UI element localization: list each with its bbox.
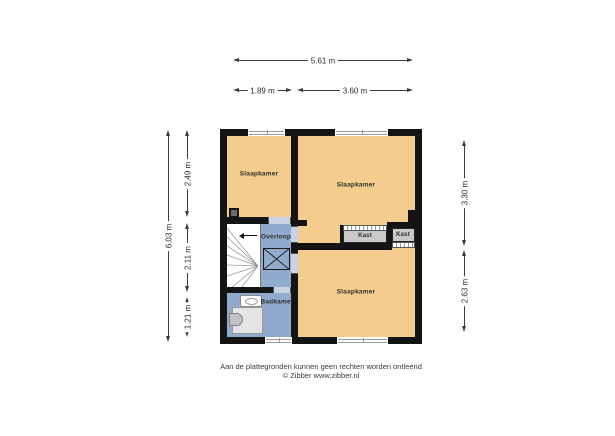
closet-right-door <box>392 242 415 248</box>
door-bathroom <box>273 287 291 293</box>
wall-bedroom-tl-bottom <box>227 217 268 224</box>
bathroom-sink <box>240 295 262 307</box>
stair-arrow <box>244 235 257 236</box>
arrow-up-icon <box>185 130 189 136</box>
stair-arrow-head-icon <box>239 233 244 239</box>
room-label-bathroom: Badkamer <box>260 299 293 306</box>
arrow-left-icon <box>233 88 239 92</box>
room-label-closet-right: Kast <box>396 232 410 238</box>
floorplan-page: 5.61 m 1.89 m 3.60 m 6.03 m 2.49 m 2.11 … <box>0 0 615 436</box>
window-top-left <box>248 129 285 136</box>
wall-bathroom-top <box>227 287 273 293</box>
door-bedroom-top-left <box>268 217 291 224</box>
arrow-up-icon <box>185 223 189 229</box>
footer: Aan de plattegronden kunnen geen rechten… <box>27 362 615 380</box>
stairs <box>227 224 261 287</box>
window-bottom-left <box>265 337 292 344</box>
dimension-label: 1.89 m <box>247 86 277 95</box>
dimension-label: 5.61 m <box>308 56 338 65</box>
room-label-closet-left: Kast <box>358 233 372 239</box>
dimension-label: 2.63 m <box>460 276 469 306</box>
wall-central-upper <box>291 136 298 226</box>
dimension-left-top-segment: 2.49 m <box>183 130 192 217</box>
dimension-label: 3.60 m <box>340 86 370 95</box>
void-x-marker <box>263 248 290 270</box>
floor-plan: Slaapkamer Slaapkamer Slaapkamer Overloo… <box>220 129 422 344</box>
door-bedroom-top-right <box>291 226 298 243</box>
bathroom-toilet <box>229 313 243 326</box>
footer-disclaimer: Aan de plattegronden kunnen geen rechten… <box>27 362 615 371</box>
arrow-down-icon <box>462 326 466 332</box>
dimension-label: 1.21 m <box>183 302 192 332</box>
window-top-right <box>335 129 388 136</box>
dimension-top-right-segment: 3.60 m <box>297 86 413 95</box>
wall-right-stub <box>408 210 415 223</box>
wall-outer-left <box>220 129 227 344</box>
room-label-bedroom-top-right: Slaapkamer <box>337 182 376 189</box>
window-bottom-right <box>337 337 388 344</box>
arrow-down-icon <box>185 211 189 217</box>
wall-outer-right <box>415 129 422 344</box>
dimension-label: 3.30 m <box>460 178 469 208</box>
arrow-right-icon <box>407 58 413 62</box>
arrow-left-icon <box>233 58 239 62</box>
dimension-left-bottom-segment: 1.21 m <box>183 297 192 337</box>
dimension-left-middle-segment: 2.11 m <box>183 223 192 292</box>
footer-credit: © Zibber www.zibber.nl <box>27 371 615 380</box>
wall-stub-bedroom-tr <box>298 220 307 226</box>
dimension-label: 2.11 m <box>183 243 192 273</box>
sink-basin <box>245 298 258 305</box>
dimension-right-top-segment: 3.30 m <box>460 140 469 246</box>
room-label-bedroom-bottom: Slaapkamer <box>337 289 376 296</box>
room-label-landing: Overloop <box>261 234 291 241</box>
dimension-top-total: 5.61 m <box>233 56 413 65</box>
dimension-left-total: 6.03 m <box>164 130 173 342</box>
room-label-bedroom-top-left: Slaapkamer <box>240 171 279 178</box>
arrow-right-icon <box>407 88 413 92</box>
dimension-right-bottom-segment: 2.63 m <box>460 250 469 332</box>
arrow-down-icon <box>462 240 466 246</box>
wall-central-lower <box>291 274 298 337</box>
dimension-top-left-segment: 1.89 m <box>233 86 292 95</box>
arrow-down-icon <box>166 336 170 342</box>
arrow-up-icon <box>462 140 466 146</box>
arrow-down-icon <box>185 286 189 292</box>
duct-shaft <box>229 208 239 218</box>
arrow-up-icon <box>462 250 466 256</box>
door-bedroom-bottom <box>291 253 298 274</box>
wall-outer-bottom <box>220 337 422 344</box>
closet-left-door <box>343 225 387 231</box>
dimension-label: 6.03 m <box>164 221 173 251</box>
arrow-right-icon <box>286 88 292 92</box>
dimension-label: 2.49 m <box>183 158 192 188</box>
arrow-up-icon <box>166 130 170 136</box>
arrow-left-icon <box>297 88 303 92</box>
